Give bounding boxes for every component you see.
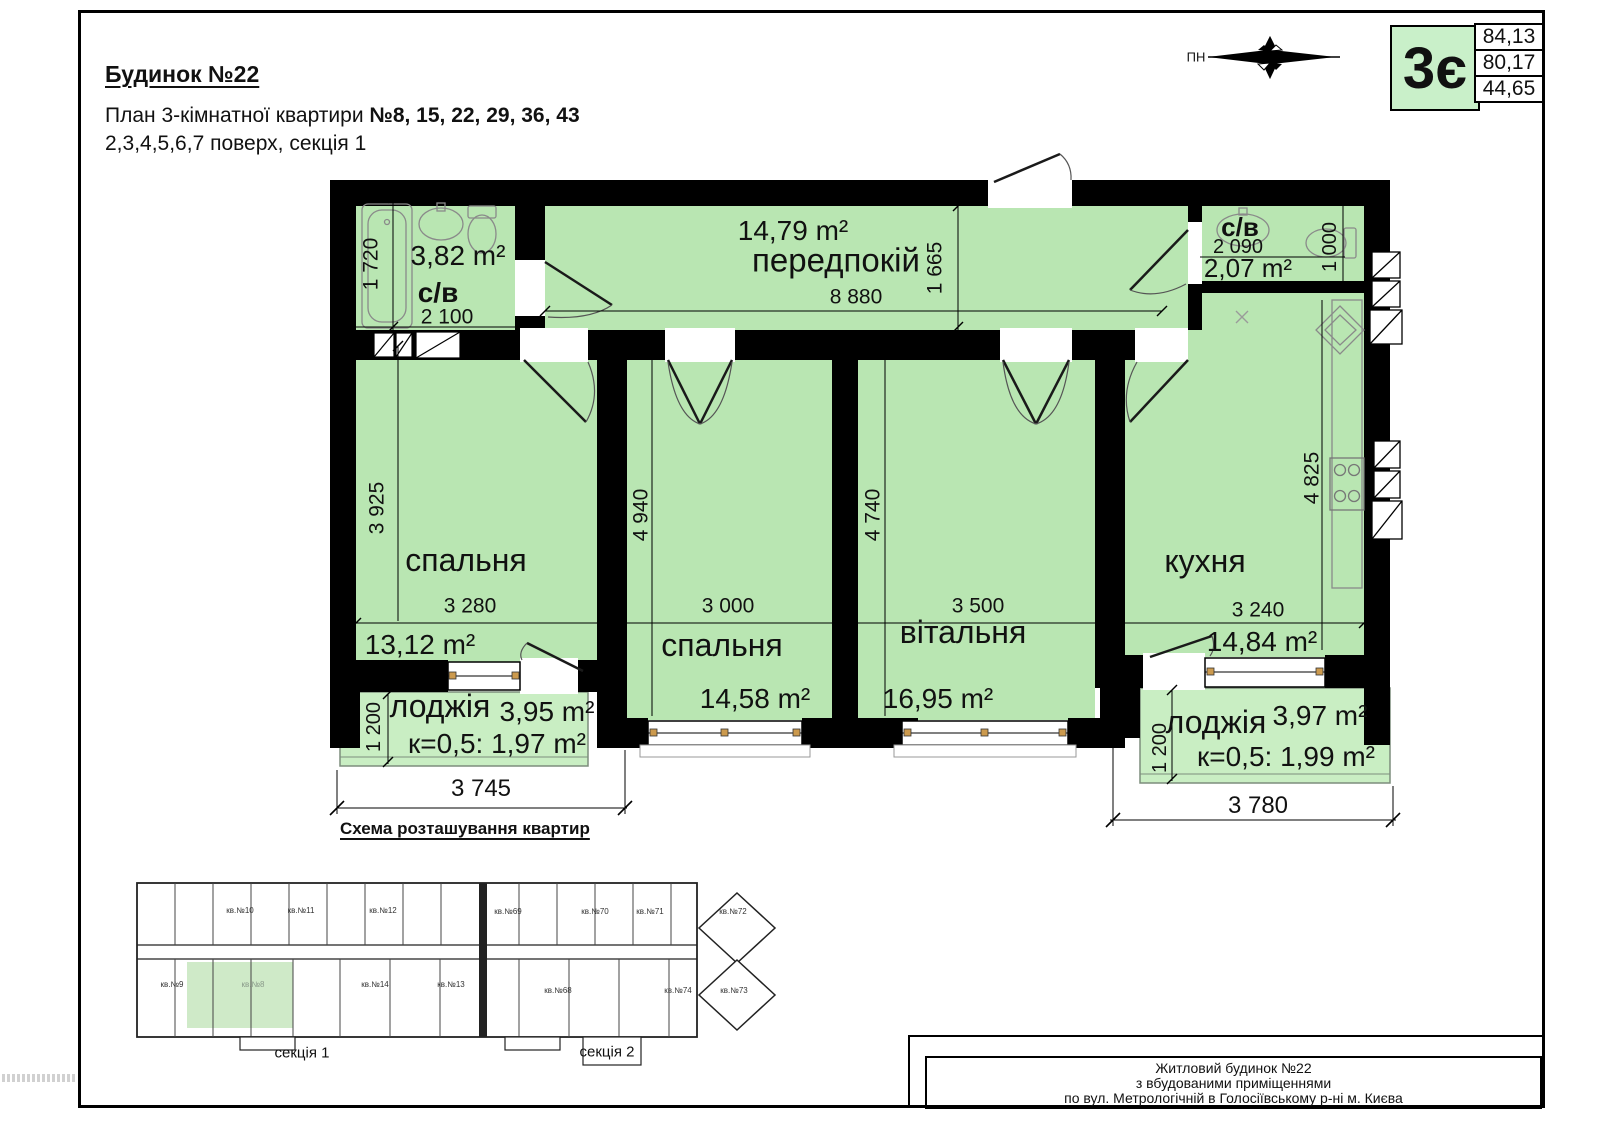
dim-loggia2-height: 1 200: [1150, 723, 1170, 773]
apartment-label-74: кв.№74: [664, 987, 691, 995]
area-loggia2: 3,97 m²: [1273, 702, 1368, 730]
dim-bedroom1-width: 3 280: [444, 596, 497, 617]
area-kitchen: 14,84 m²: [1207, 628, 1318, 656]
label-living: вітальня: [900, 616, 1027, 648]
area-bath1: 3,82 m²: [411, 242, 506, 270]
scheme-title: Схема розташування квартир: [340, 818, 590, 839]
laundry-cabinets: [374, 332, 460, 358]
apartment-label-8-highlighted: кв.№8: [241, 981, 264, 989]
coef-loggia2: к=0,5: 1,99 m²: [1197, 743, 1375, 771]
label-loggia1: лоджія: [390, 690, 491, 722]
label-bedroom2: спальня: [661, 629, 782, 661]
dim-loggia1-width: 3 745: [451, 777, 511, 801]
label-bath1: с/в: [418, 279, 459, 307]
dim-bath2-height: 1 000: [1320, 222, 1340, 272]
watermark: [2, 1074, 76, 1082]
apartment-label-68: кв.№68: [544, 987, 571, 995]
window-living: [894, 721, 1076, 757]
window-bedroom2: [640, 721, 810, 757]
coef-loggia1: к=0,5: 1,97 m²: [408, 730, 586, 758]
title-block-line1: Житловий будинок №22: [927, 1061, 1540, 1076]
title-block: Житловий будинок №22 з вбудованими примі…: [925, 1056, 1542, 1109]
dim-hall-height: 1 665: [925, 242, 946, 295]
drawing-sheet: Будинок №22 План 3-кімнатної квартири №8…: [0, 0, 1600, 1131]
dim-kitchen-width: 3 240: [1232, 600, 1285, 621]
dim-hall-width: 8 880: [830, 287, 883, 308]
section-2-label: секція 2: [580, 1045, 635, 1060]
apartment-label-9: кв.№9: [160, 981, 183, 989]
apartment-label-11: кв.№11: [288, 907, 315, 915]
label-kitchen: кухня: [1164, 545, 1245, 577]
title-block-line3: по вул. Метрологічній в Голосіївському р…: [927, 1091, 1540, 1106]
apartment-label-70: кв.№70: [581, 908, 608, 916]
compass-icon: [1208, 37, 1340, 78]
window-bedroom1: [448, 662, 520, 690]
apartment-label-73: кв.№73: [720, 987, 747, 995]
reduced-area-cell: 80,17: [1474, 49, 1544, 77]
dim-bedroom2-height: 4 940: [631, 489, 652, 542]
apartment-label-14: кв.№14: [361, 981, 388, 989]
living-area-cell: 44,65: [1474, 75, 1544, 103]
dim-bedroom1-height: 3 925: [367, 482, 388, 535]
area-loggia1: 3,95 m²: [500, 698, 595, 726]
highlighted-apartment-shape: [187, 962, 293, 1028]
apartment-label-10: кв.№10: [226, 907, 253, 915]
dim-bath1-height: 1 720: [361, 238, 382, 291]
dim-loggia1-height: 1 200: [364, 702, 384, 752]
label-loggia2: лоджія: [1166, 706, 1267, 738]
area-bath2: 2,07 m²: [1204, 255, 1292, 281]
apartment-label-13: кв.№13: [437, 981, 464, 989]
area-bedroom2: 14,58 m²: [700, 685, 811, 713]
label-hall: передпокій: [752, 244, 920, 277]
window-kitchen: [1205, 658, 1325, 687]
apartment-label-12: кв.№12: [369, 907, 396, 915]
plan-drawing: [0, 0, 1600, 1131]
area-summary-table: 84,13 80,17 44,65: [1474, 25, 1544, 103]
area-living: 16,95 m²: [883, 685, 994, 713]
dim-bedroom2-width: 3 000: [702, 596, 755, 617]
label-bedroom1: спальня: [405, 544, 526, 576]
apartment-label-71: кв.№71: [636, 908, 663, 916]
title-block-line2: з вбудованими приміщеннями: [927, 1076, 1540, 1091]
apartment-label-72: кв.№72: [719, 908, 746, 916]
apartment-type-badge: 3є: [1390, 25, 1480, 111]
area-bedroom1: 13,12 m²: [365, 631, 476, 659]
dim-living-width: 3 500: [952, 596, 1005, 617]
dim-bath1-width: 2 100: [421, 307, 474, 328]
apartment-label-69: кв.№69: [494, 908, 521, 916]
dim-living-height: 4 740: [863, 489, 884, 542]
dim-loggia2-width: 3 780: [1228, 794, 1288, 818]
section-1-label: секція 1: [275, 1046, 330, 1061]
dim-kitchen-height: 4 825: [1302, 452, 1323, 505]
total-area-cell: 84,13: [1474, 23, 1544, 51]
